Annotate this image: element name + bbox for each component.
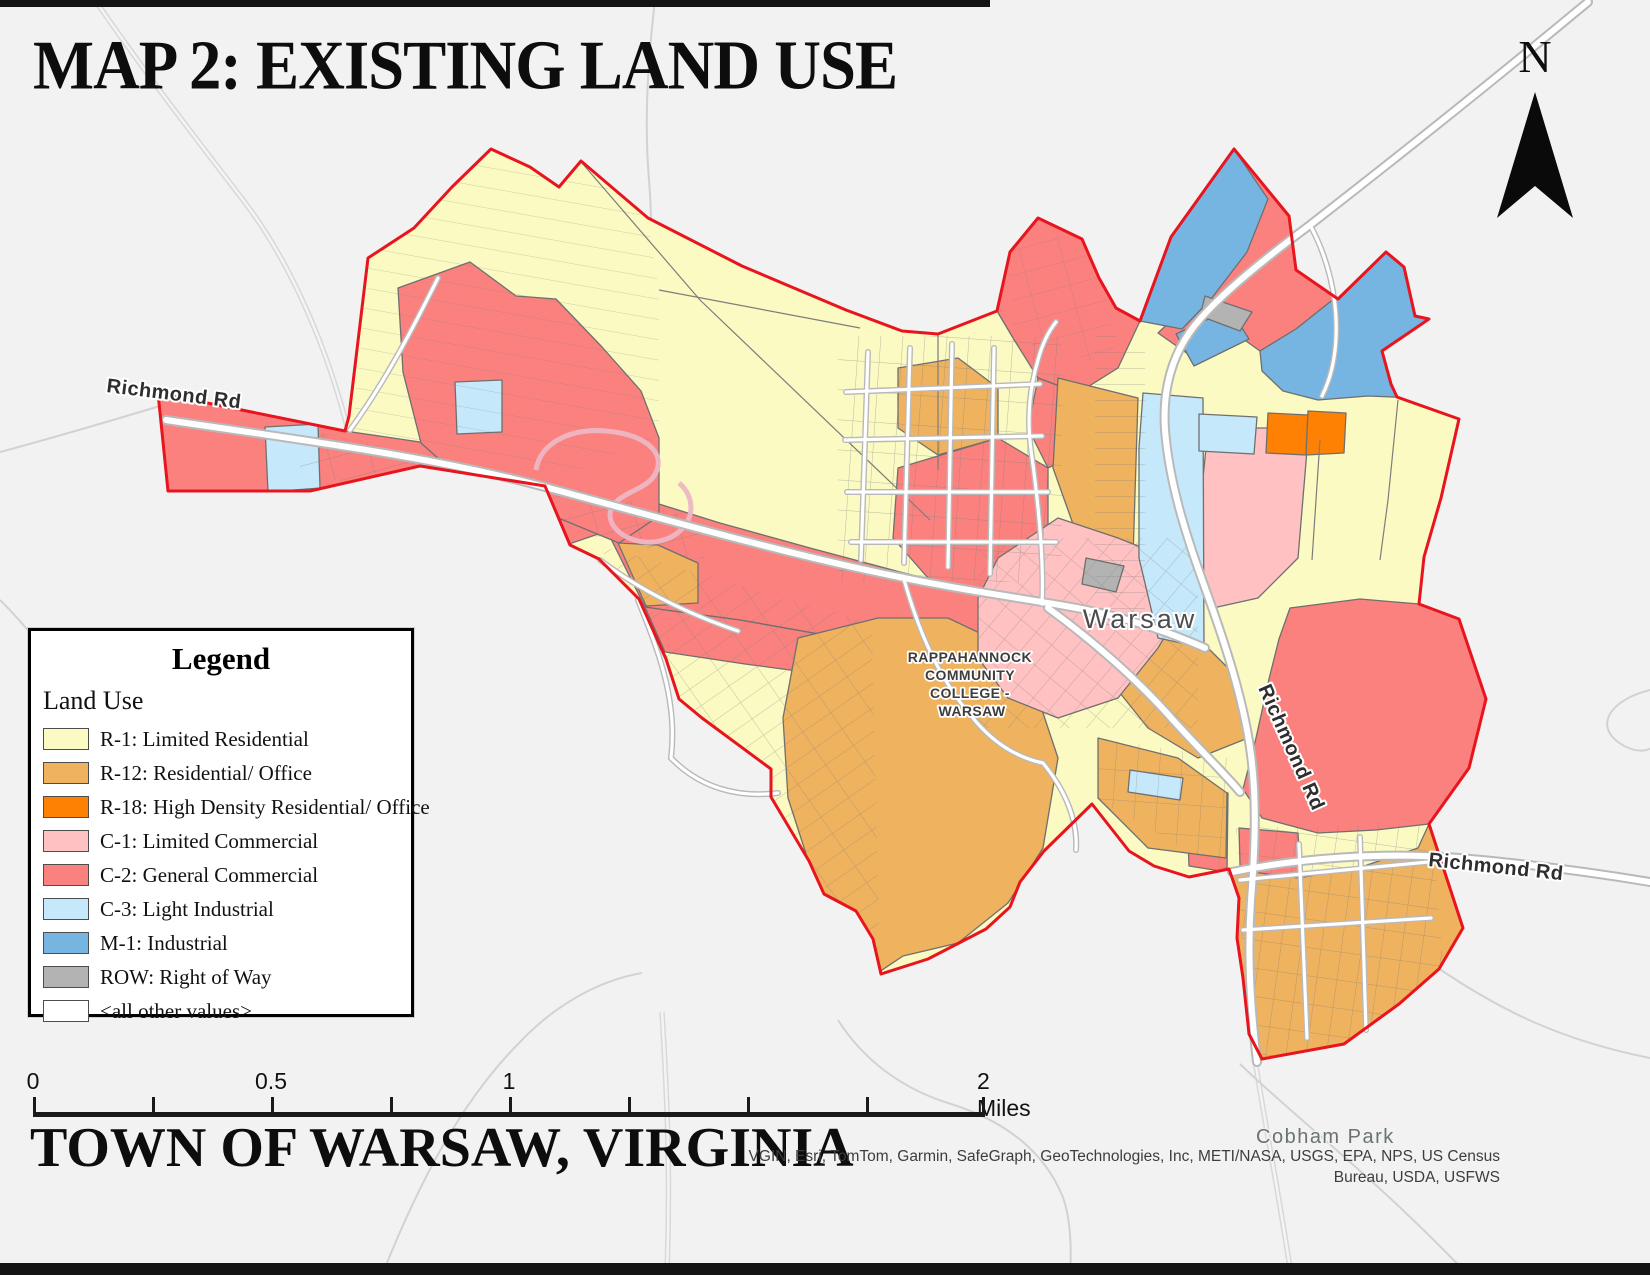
legend-swatch <box>43 830 89 852</box>
legend-item-other: <all other values> <box>31 994 411 1028</box>
page-title: MAP 2: EXISTING LAND USE <box>33 26 897 107</box>
scale-bar: 0 0.5 1 2 Miles <box>33 1068 1043 1120</box>
credits-line1: VGIN, Esri, TomTom, Garmin, SafeGraph, G… <box>749 1146 1500 1167</box>
legend-section-label: Land Use <box>43 686 411 716</box>
scale-label-1: 1 <box>503 1068 516 1095</box>
legend-swatch <box>43 762 89 784</box>
legend-swatch <box>43 728 89 750</box>
scale-label-2-miles: 2 Miles <box>977 1068 1043 1122</box>
town-label: Warsaw <box>1083 604 1198 634</box>
college-label-line2: COMMUNITY <box>925 667 1015 683</box>
legend-item-c-1: C-1: Limited Commercial <box>31 824 411 858</box>
legend-swatch <box>43 898 89 920</box>
map-sheet: Richmond Rd Richmond Rd Richmond Rd Wars… <box>0 0 1650 1275</box>
legend-item-label: R-1: Limited Residential <box>100 727 309 752</box>
zone-r18-group <box>1266 411 1346 455</box>
legend-item-label: <all other values> <box>100 999 252 1024</box>
legend-item-r-1: R-1: Limited Residential <box>31 722 411 756</box>
legend-item-r-12: R-12: Residential/ Office <box>31 756 411 790</box>
legend-swatch <box>43 932 89 954</box>
college-label-line3: COLLEGE - <box>930 685 1010 701</box>
top-frame-bar <box>0 0 990 7</box>
legend-item-label: C-2: General Commercial <box>100 863 318 888</box>
credits-line2: Bureau, USDA, USFWS <box>749 1167 1500 1188</box>
legend-swatch <box>43 796 89 818</box>
legend-swatch <box>43 966 89 988</box>
college-label-line4: WARSAW <box>939 703 1006 719</box>
legend-item-row: ROW: Right of Way <box>31 960 411 994</box>
bottom-frame-bar <box>0 1263 1650 1275</box>
legend-item-c-2: C-2: General Commercial <box>31 858 411 892</box>
legend-panel: Legend Land Use R-1: Limited Residential… <box>28 628 414 1017</box>
legend-item-m-1: M-1: Industrial <box>31 926 411 960</box>
town-title: TOWN OF WARSAW, VIRGINIA <box>30 1116 854 1180</box>
legend-swatch <box>43 1000 89 1022</box>
legend-swatch <box>43 864 89 886</box>
scale-label-0-5: 0.5 <box>255 1068 287 1095</box>
legend-item-label: ROW: Right of Way <box>100 965 272 990</box>
legend-title: Legend <box>31 641 411 677</box>
legend-item-label: C-3: Light Industrial <box>100 897 274 922</box>
legend-item-c-3: C-3: Light Industrial <box>31 892 411 926</box>
park-label: Cobham Park <box>1256 1126 1395 1148</box>
scale-label-0: 0 <box>27 1068 40 1095</box>
legend-items: R-1: Limited ResidentialR-12: Residentia… <box>31 722 411 1028</box>
north-arrow-icon <box>1497 92 1573 218</box>
north-arrow-label: N <box>1518 31 1551 82</box>
legend-item-label: R-18: High Density Residential/ Office <box>100 795 430 820</box>
legend-item-r-18: R-18: High Density Residential/ Office <box>31 790 411 824</box>
college-label-line1: RAPPAHANNOCK <box>908 649 1032 665</box>
legend-item-label: M-1: Industrial <box>100 931 228 956</box>
legend-item-label: R-12: Residential/ Office <box>100 761 312 786</box>
scale-bar-line <box>33 1097 985 1117</box>
credits: VGIN, Esri, TomTom, Garmin, SafeGraph, G… <box>749 1146 1500 1188</box>
legend-item-label: C-1: Limited Commercial <box>100 829 318 854</box>
north-arrow: N <box>1497 31 1573 218</box>
